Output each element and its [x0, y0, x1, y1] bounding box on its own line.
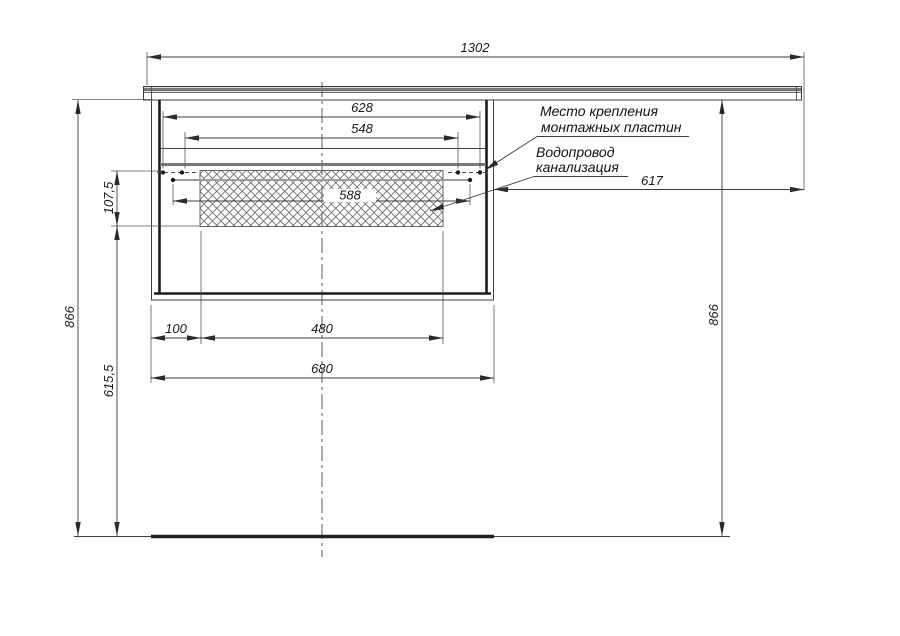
- dim-plumbing-zone-width-label: 480: [311, 321, 333, 336]
- dim-mounting-mid-label: 588: [339, 188, 361, 203]
- dim-countertop-width: 1302: [147, 40, 804, 190]
- annotation-plumbing-line2: канализация: [536, 159, 619, 175]
- countertop: [144, 87, 802, 101]
- technical-drawing-canvas: 1302 628 548 588 617 100 480 680: [0, 0, 900, 636]
- annotation-plumbing: Водопровод канализация: [430, 144, 628, 211]
- dim-clearance-under-zone: 615,5: [101, 226, 117, 536]
- dim-mounting-inner-label: 548: [351, 121, 373, 136]
- plumbing-hatch-zone: [173, 171, 470, 227]
- dim-height-left-label: 866: [62, 305, 77, 327]
- leader-mounting-plates: [485, 137, 537, 171]
- dim-mounting-outer-label: 628: [351, 100, 373, 115]
- dim-right-overhang-label: 617: [641, 173, 663, 188]
- dim-height-right-label: 866: [706, 303, 721, 325]
- dim-cabinet-width-label: 680: [311, 361, 333, 376]
- installation-diagram: 1302 628 548 588 617 100 480 680: [0, 0, 900, 636]
- dim-clearance-under-zone-label: 615,5: [101, 364, 116, 397]
- leader-plumbing: [430, 177, 534, 212]
- dim-countertop-width-label: 1302: [461, 40, 491, 55]
- annotation-plumbing-line1: Водопровод: [536, 144, 615, 160]
- dim-plumbing-zone-height-label: 107,5: [101, 181, 116, 214]
- dim-height-left: 866: [62, 100, 151, 537]
- annotation-mounting-plates-line1: Место крепления: [540, 103, 659, 119]
- dim-side-inset-label: 100: [165, 321, 187, 336]
- dim-right-overhang: 617: [494, 173, 804, 190]
- dim-height-right: 866: [706, 100, 722, 536]
- annotation-mounting-plates-line2: монтажных пластин: [541, 119, 682, 135]
